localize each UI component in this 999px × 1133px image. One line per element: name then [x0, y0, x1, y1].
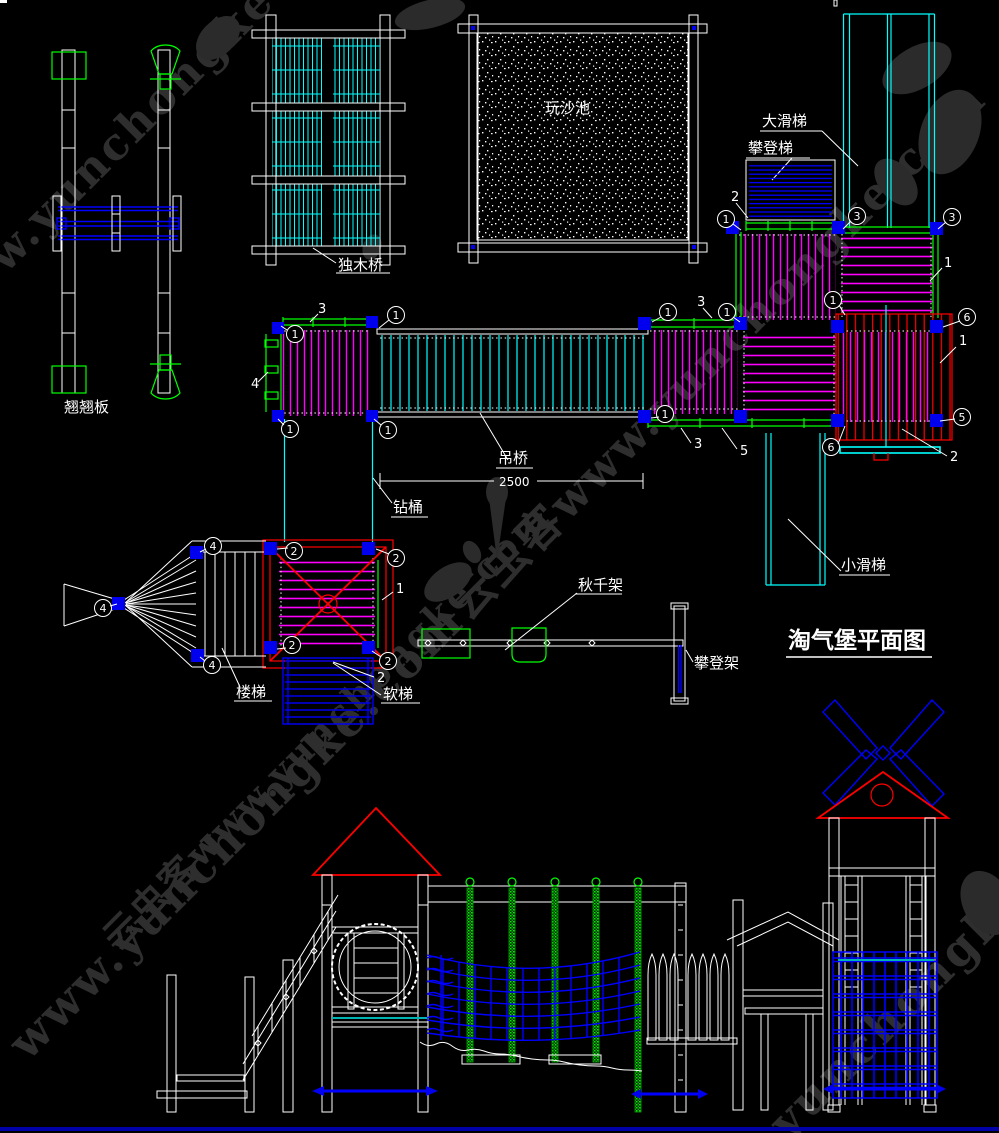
svg-text:3: 3: [697, 295, 705, 310]
elev-windmill-tower: [818, 700, 948, 1112]
svg-text:2: 2: [385, 655, 392, 668]
sand-pit-label: 玩沙池: [545, 99, 590, 117]
drawing-title: 淘气堡平面图: [786, 627, 932, 657]
green-poles: [467, 888, 641, 1112]
cad-viewport: www.yunchongke.com www.yunchongke.com 云虫…: [0, 0, 999, 1133]
climbing-frame-label: 攀登架: [694, 654, 739, 672]
elev-fence: [631, 883, 737, 1112]
log-bridge-label: 独木桥: [338, 256, 383, 274]
svg-text:1: 1: [959, 334, 967, 349]
platform-cluster: [648, 227, 952, 460]
svg-text:4: 4: [100, 602, 107, 615]
svg-text:5: 5: [959, 411, 966, 424]
svg-text:1: 1: [385, 424, 392, 437]
small-slide-plan: 小滑梯: [766, 433, 890, 585]
sand-pit: 玩沙池: [458, 15, 707, 263]
climbing-ladder-label: 攀登梯: [748, 139, 793, 157]
svg-text:1: 1: [665, 306, 672, 319]
svg-text:1: 1: [724, 306, 731, 319]
svg-text:6: 6: [964, 311, 971, 324]
svg-text:1: 1: [287, 423, 294, 436]
sagging-net: [427, 952, 640, 1040]
elev-net-section: [420, 878, 686, 1112]
blue-arrow-bar: [631, 1089, 708, 1099]
svg-text:1: 1: [292, 328, 299, 341]
blue-arrow-bar: [312, 1086, 438, 1096]
crawl-barrel: 钻桶: [373, 478, 428, 517]
soft-ladder-label: 软梯: [383, 685, 413, 703]
svg-text:3: 3: [694, 437, 702, 452]
ground-line: [420, 1042, 642, 1071]
elev-left-frame: [157, 975, 254, 1112]
watermark-text: www.yunchongke.com: [657, 773, 999, 1133]
svg-text:2: 2: [393, 552, 400, 565]
windmill-blades: [823, 700, 944, 806]
svg-text:4: 4: [210, 540, 217, 553]
svg-text:3: 3: [318, 302, 326, 317]
title-text: 淘气堡平面图: [788, 627, 926, 654]
cad-canvas: www.yunchongke.com www.yunchongke.com 云虫…: [0, 0, 999, 1133]
hanger-rings: [466, 878, 642, 886]
log-bridge-plan: 独木桥: [252, 15, 405, 274]
svg-text:3: 3: [854, 210, 861, 223]
svg-text:1: 1: [393, 309, 400, 322]
elev-staircase: [243, 895, 338, 1112]
elev-left-tower: [312, 808, 453, 1112]
seesaw-label: 翘翘板: [64, 398, 109, 416]
svg-text:1: 1: [944, 256, 952, 271]
svg-text:1: 1: [723, 213, 730, 226]
crawl-barrel-tubes: [285, 419, 373, 542]
svg-text:3: 3: [949, 211, 956, 224]
bottom-border-line: [0, 1127, 999, 1131]
porthole-scallop-ring: [332, 924, 418, 1010]
crawl-barrel-label: 钻桶: [393, 498, 423, 516]
svg-text:4: 4: [209, 659, 216, 672]
svg-text:2: 2: [291, 545, 298, 558]
svg-text:6: 6: [828, 441, 835, 454]
svg-text:1: 1: [830, 294, 837, 307]
fan-stairs-plan: 楼梯: [64, 541, 272, 701]
climbing-frame-plan: 攀登架: [671, 603, 739, 704]
climb-net-grid: [833, 952, 937, 1098]
big-slide-label: 大滑梯: [762, 112, 807, 130]
svg-text:2: 2: [950, 450, 958, 465]
svg-text:4: 4: [251, 377, 259, 392]
dimension-text: 2500: [499, 475, 530, 489]
svg-text:1: 1: [662, 408, 669, 421]
svg-text:2: 2: [289, 639, 296, 652]
svg-text:2: 2: [377, 671, 385, 686]
small-slide-label: 小滑梯: [841, 556, 886, 574]
svg-text:1: 1: [396, 582, 404, 597]
swing-frame-label: 秋千架: [578, 576, 623, 594]
suspension-bridge-label: 吊桥: [498, 449, 528, 467]
svg-text:2: 2: [731, 190, 739, 205]
stairs-label: 楼梯: [236, 683, 266, 701]
svg-text:5: 5: [740, 444, 748, 459]
pickets: [648, 954, 729, 1040]
